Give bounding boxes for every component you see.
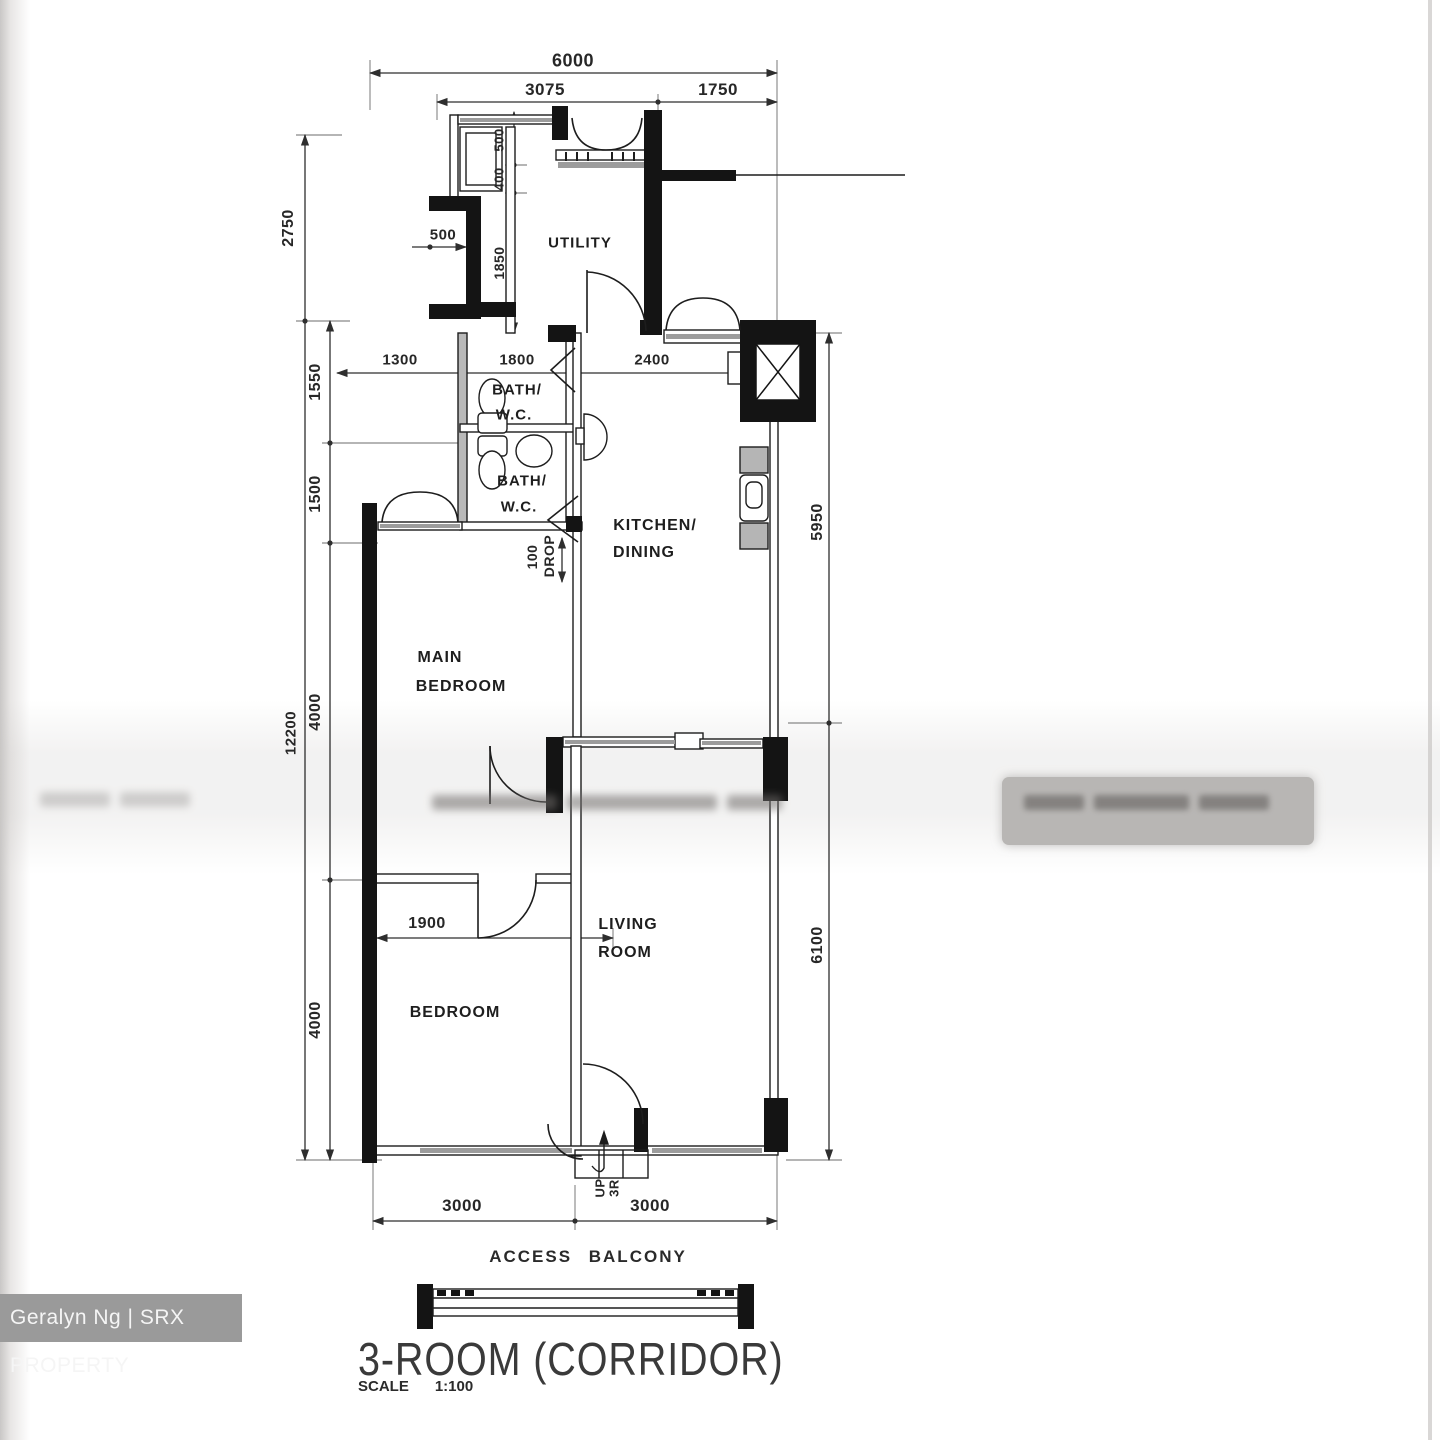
kitchen-basin: [584, 414, 607, 460]
doors: [382, 118, 740, 1159]
lift-shaft: [740, 320, 816, 422]
dim-top-right: 1750: [698, 80, 738, 100]
blurred-watermark-box-text: [1024, 795, 1269, 810]
dim-left-4000b: 4000: [307, 1001, 325, 1039]
dim-left-total: 12200: [283, 711, 300, 755]
dim-inner-1800: 1800: [499, 352, 534, 369]
dim-left-1500: 1500: [307, 475, 325, 513]
room-bedroom: BEDROOM: [410, 1004, 501, 1022]
dim-left-1550: 1550: [307, 363, 325, 401]
label-up: UP: [593, 1178, 608, 1197]
room-living-line2: ROOM: [598, 944, 652, 962]
dim-top-left: 3075: [525, 80, 565, 100]
dim-bottom-3000-right: 3000: [630, 1196, 670, 1216]
agent-watermark: Geralyn Ng | SRX PROPERTY: [0, 1294, 242, 1342]
room-kitchen-line2: DINING: [613, 544, 675, 562]
room-kitchen-line1: KITCHEN/: [613, 517, 697, 535]
scale-label: SCALE: [358, 1378, 409, 1395]
bath-basin: [516, 435, 552, 467]
dim-left-4000a: 4000: [307, 693, 325, 731]
scale-note: SCALE1:100: [358, 1378, 499, 1395]
dim-recess-500: 500: [430, 227, 457, 244]
room-bath2-line1: BATH/: [497, 473, 547, 490]
label-drop: DROP: [541, 535, 557, 577]
blurred-watermark-box: [1002, 777, 1314, 845]
dim-left-2750: 2750: [280, 209, 298, 247]
room-main-bedroom-line2: BEDROOM: [416, 678, 507, 696]
floor-plan-page: 6000 3075 1750 2750 1550 1500 4000 12200…: [0, 0, 1440, 1440]
dim-inner-2400: 2400: [634, 352, 669, 369]
kitchen-counter: [740, 447, 768, 473]
dim-bedroom-1900: 1900: [408, 915, 446, 933]
kitchen-bifold-door: [666, 298, 703, 330]
room-utility: UTILITY: [548, 235, 612, 252]
dim-bottom-3000-left: 3000: [442, 1196, 482, 1216]
dim-niche-1850: 1850: [491, 246, 507, 279]
room-bath1-line2: W.C.: [496, 407, 533, 424]
dim-inner-1300: 1300: [382, 352, 417, 369]
dim-right-5950: 5950: [809, 503, 827, 541]
label-3r: 3R: [607, 1179, 622, 1197]
dim-top-overall: 6000: [552, 51, 594, 72]
dim-niche-500: 500: [492, 128, 507, 151]
dim-drop-100: 100: [524, 545, 540, 570]
room-main-bedroom-line1: MAIN: [418, 649, 463, 667]
dim-right-6100: 6100: [809, 926, 827, 964]
walls-thin: [376, 115, 778, 1156]
floor-plan-drawing: [0, 0, 1440, 1440]
dim-niche-400: 400: [492, 167, 507, 190]
room-living-line1: LIVING: [598, 916, 657, 934]
dimension-ticks: [302, 99, 831, 1223]
room-bath2-line2: W.C.: [501, 499, 538, 516]
label-access-balcony: ACCESS BALCONY: [489, 1247, 687, 1267]
access-balcony-bar: [433, 1289, 738, 1316]
blurred-watermark-center: [432, 795, 782, 810]
blurred-watermark-left: [40, 792, 200, 807]
utility-bifold-door: [572, 118, 606, 150]
main-bedroom-window-bifold: [382, 492, 420, 522]
scale-value: 1:100: [435, 1378, 473, 1395]
room-bath1-line1: BATH/: [492, 382, 542, 399]
